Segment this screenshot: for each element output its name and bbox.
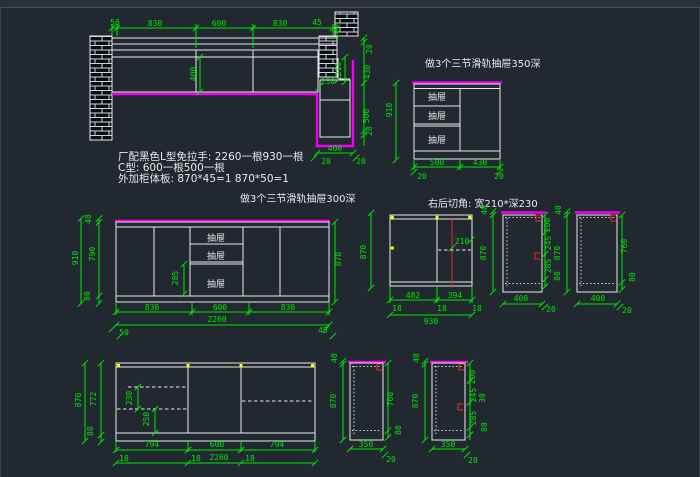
d9-hinge-mark-2 xyxy=(458,404,463,410)
d5-dim-870: 870 xyxy=(479,246,488,261)
d4-dim-394: 394 xyxy=(448,291,463,300)
d9-dim-40: 40 xyxy=(412,353,421,363)
d9-dim-245: 245 xyxy=(469,388,478,403)
d8-off-20: 20 xyxy=(386,455,396,464)
d3-dim-830a: 830 xyxy=(145,303,160,312)
d9-hinge-mark-1 xyxy=(459,364,464,370)
drawing-panel-400-plain: 40 870 760 80 400 20 xyxy=(553,205,637,315)
cad-canvas[interactable]: 50 830 600 830 45 400 230 210 20 430 500… xyxy=(0,0,700,477)
d5-dim-245: 245 xyxy=(544,236,553,251)
d3-title: 做3个三节滑轨抽屉300深 xyxy=(240,192,355,205)
d8-dim-760: 760 xyxy=(386,392,395,407)
d5-dim-80: 80 xyxy=(553,271,562,281)
d7-joint-mark-3 xyxy=(240,364,243,367)
d7-dim-794a: 794 xyxy=(145,440,160,449)
d2-dim-910: 910 xyxy=(385,103,394,118)
d9-dim-30: 30 xyxy=(478,393,487,403)
d2-drawer-3: 抽屉 xyxy=(428,134,446,146)
d2-drawer-1: 抽屉 xyxy=(428,91,446,103)
d2-title: 做3个三节滑轨抽屉350深 xyxy=(425,57,540,70)
d3-dim-830b: 830 xyxy=(281,303,296,312)
d7-thk-18a: 18 xyxy=(119,454,129,463)
d3-dim-80: 80 xyxy=(83,291,92,301)
d1-chain-20b: 20 xyxy=(365,126,374,136)
brick-wall-top-right-a xyxy=(335,12,358,36)
drawing-top-elevation: 50 830 600 830 45 400 230 210 20 430 500… xyxy=(90,12,374,166)
d9-dim-350: 350 xyxy=(441,440,456,449)
drawing-panel-400-hinged: 40 870 200 245 285 80 400 20 xyxy=(479,205,562,314)
d9-off-20: 20 xyxy=(468,456,478,465)
d4-dim-930: 930 xyxy=(424,317,439,326)
d7-dim-870: 870 xyxy=(74,393,83,408)
cad-drawing-area: 50 830 600 830 45 400 230 210 20 430 500… xyxy=(0,0,700,477)
d8-dim-350: 350 xyxy=(359,440,374,449)
drawing-corner-cut: 右后切角: 宽210*深230 210 870 482 394 18 18 18… xyxy=(359,197,538,326)
d3-dim-40: 40 xyxy=(84,214,93,224)
d1-chain-430: 430 xyxy=(363,65,372,80)
d7-dim-794b: 794 xyxy=(270,440,285,449)
d9-dim-285: 285 xyxy=(469,411,478,426)
d6-dim-760: 760 xyxy=(620,239,629,254)
d5-dim-40: 40 xyxy=(480,205,489,215)
d4-dim-482: 482 xyxy=(406,291,421,300)
d8-dim-40: 40 xyxy=(330,353,339,363)
drawing-cabinet-300: 做3个三节滑轨抽屉300深 抽屉 抽屉 抽屉 285 910 40 790 80… xyxy=(71,192,355,339)
d7-dim-2260: 2260 xyxy=(209,453,228,462)
d6-dim-400: 400 xyxy=(591,294,606,303)
d2-off-20a: 20 xyxy=(417,172,427,181)
d3-drawer-2: 抽屉 xyxy=(207,250,225,262)
drawing-cabinet-350: 做3个三节滑轨抽屉350深 抽屉 抽屉 抽屉 910 500 430 20 20 xyxy=(385,57,540,181)
d4-joint-mark-2 xyxy=(436,216,439,219)
d3-dim-910: 910 xyxy=(71,251,80,266)
d1-dim-830b: 830 xyxy=(273,19,288,28)
d9-dim-80: 80 xyxy=(480,422,489,432)
d1-dim-45: 45 xyxy=(312,18,322,27)
d4-dim-870: 870 xyxy=(359,245,368,260)
d2-dim-430: 430 xyxy=(473,158,488,167)
d7-joint-mark-2 xyxy=(187,364,190,367)
drawing-plan-2260: 230 250 870 772 80 794 600 794 18 18 226… xyxy=(74,360,318,466)
d4-thk-18b: 18 xyxy=(437,304,447,313)
d5-hinge-mark-2 xyxy=(535,253,540,259)
d2-drawer-2: 抽屉 xyxy=(428,110,446,122)
d7-dim-772: 772 xyxy=(89,392,98,407)
brick-wall-left xyxy=(90,36,112,140)
d8-dim-870: 870 xyxy=(329,394,338,409)
d3-dim-50: 50 xyxy=(119,328,129,337)
d5-dim-285: 285 xyxy=(544,259,553,274)
d3-dim-2260: 2260 xyxy=(207,315,226,324)
d4-thk-18c: 18 xyxy=(472,304,482,313)
d3-drawer-3: 抽屉 xyxy=(207,278,225,290)
d7-dim-230: 230 xyxy=(125,391,134,406)
d8-dim-80: 80 xyxy=(394,425,403,435)
d8-hinge-mark xyxy=(377,364,382,370)
d1-chain-500: 500 xyxy=(362,109,371,124)
d1-off-20a: 20 xyxy=(321,157,331,166)
d1-dim-600: 600 xyxy=(212,19,227,28)
d3-dim-790: 790 xyxy=(88,247,97,262)
d2-dim-500: 500 xyxy=(430,158,445,167)
d1-dim-210: 210 xyxy=(334,62,343,77)
handle-line-magenta xyxy=(112,60,353,146)
drawing-panel-350-plain: 40 870 760 80 350 20 xyxy=(329,353,403,464)
d4-joint-mark-4 xyxy=(391,247,394,250)
d3-dim-45: 45 xyxy=(318,326,328,335)
d3-dim-285: 285 xyxy=(171,271,180,286)
d6-dim-80: 80 xyxy=(628,272,637,282)
d7-joint-mark-4 xyxy=(311,364,314,367)
d4-joint-mark-1 xyxy=(391,216,394,219)
d4-dim-210: 210 xyxy=(455,237,470,246)
d7-dim-80: 80 xyxy=(86,426,95,436)
d4-thk-18a: 18 xyxy=(392,304,402,313)
d2-off-20b: 20 xyxy=(494,172,504,181)
d1-dim-830a: 830 xyxy=(148,19,163,28)
d6-dim-40: 40 xyxy=(554,205,563,215)
drawing-panel-350-hinged: 40 870 200 245 30 285 80 350 20 xyxy=(411,353,489,465)
d7-dim-600: 600 xyxy=(210,440,225,449)
d1-chain-20a: 20 xyxy=(365,44,374,54)
d1-dim-50: 50 xyxy=(110,18,120,27)
d4-joint-mark-3 xyxy=(468,216,471,219)
note-line-3: 外加柜体板: 870*45=1 870*50=1 xyxy=(118,172,289,185)
d7-joint-mark-1 xyxy=(117,364,120,367)
d1-dim-230: 230 xyxy=(321,77,336,86)
d7-thk-18b: 18 xyxy=(191,454,201,463)
d5-dim-200: 200 xyxy=(543,218,552,233)
d9-dim-200: 200 xyxy=(468,370,477,385)
d3-dim-600: 600 xyxy=(213,303,228,312)
d1-dim-400v: 400 xyxy=(189,67,198,82)
d1-off-20b: 20 xyxy=(356,157,366,166)
d7-thk-18c: 18 xyxy=(245,454,255,463)
d1-dim-400b: 400 xyxy=(328,144,343,153)
d3-drawer-1: 抽屉 xyxy=(207,232,225,244)
notes-block: 厂配黑色L型免拉手: 2260一根930一根 C型: 600一根500一根 外加… xyxy=(118,150,304,185)
d7-dim-250: 250 xyxy=(142,412,151,427)
d5-off-20: 20 xyxy=(546,305,556,314)
d5-dim-400: 400 xyxy=(514,294,529,303)
d3-dim-870: 870 xyxy=(334,252,343,267)
d9-dim-870: 870 xyxy=(411,394,420,409)
d6-off-20: 20 xyxy=(622,306,632,315)
d6-dim-870: 870 xyxy=(553,246,562,261)
